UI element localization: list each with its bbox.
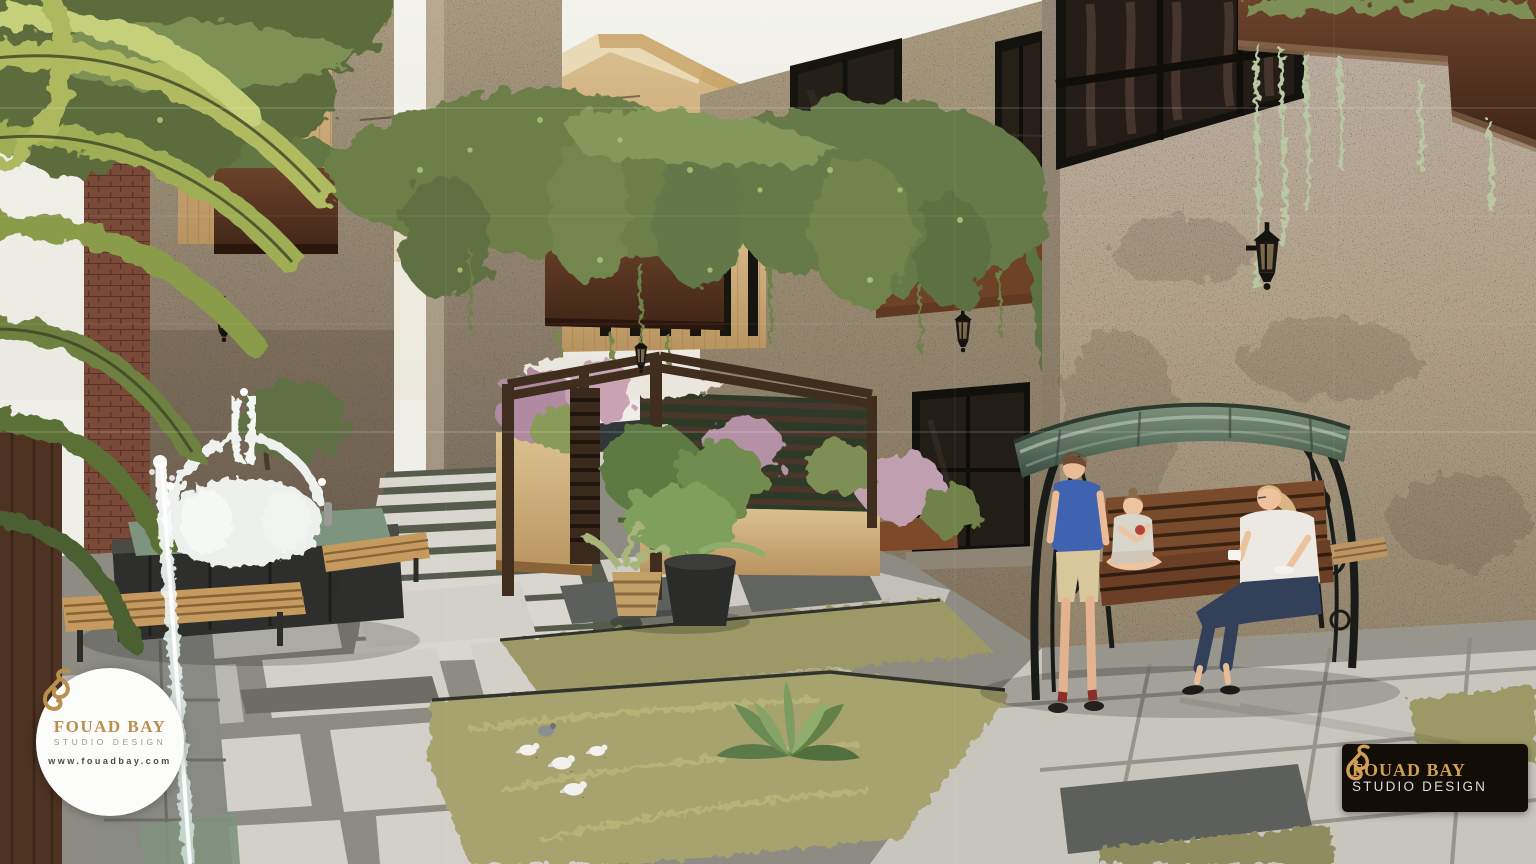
girl-top	[1112, 514, 1154, 554]
badge-brand-name: FOUAD BAY	[54, 718, 167, 736]
badge-website: www.fouadbay.com	[48, 756, 172, 766]
badge-tagline: STUDIO DESIGN	[54, 737, 167, 747]
boy-shoe	[1084, 701, 1104, 711]
courtyard-scene	[0, 0, 1536, 864]
brand-monogram-icon	[36, 668, 80, 720]
vine-clump	[399, 176, 491, 300]
apple	[1135, 525, 1145, 535]
vine-clump	[916, 196, 988, 308]
boy-shirt	[1052, 480, 1104, 554]
vine-clump	[812, 158, 912, 306]
logo-plate: FOUAD BAY STUDIO DESIGN	[1342, 744, 1528, 812]
brand-monogram-icon	[1342, 744, 1376, 788]
black-pot	[664, 562, 736, 626]
woman-flat-shoe	[1220, 686, 1240, 695]
coffee-cup	[1228, 550, 1241, 560]
boy-shoe	[1048, 703, 1068, 713]
saucer	[1273, 566, 1295, 574]
watermark-badge: FOUAD BAY STUDIO DESIGN www.fouadbay.com	[36, 668, 184, 816]
woman-glasses	[1258, 497, 1266, 498]
girl-shorts	[1110, 550, 1154, 564]
architectural-render: FOUAD BAY STUDIO DESIGN www.fouadbay.com…	[0, 0, 1536, 864]
vine-clump	[654, 148, 746, 288]
spout	[324, 502, 332, 526]
